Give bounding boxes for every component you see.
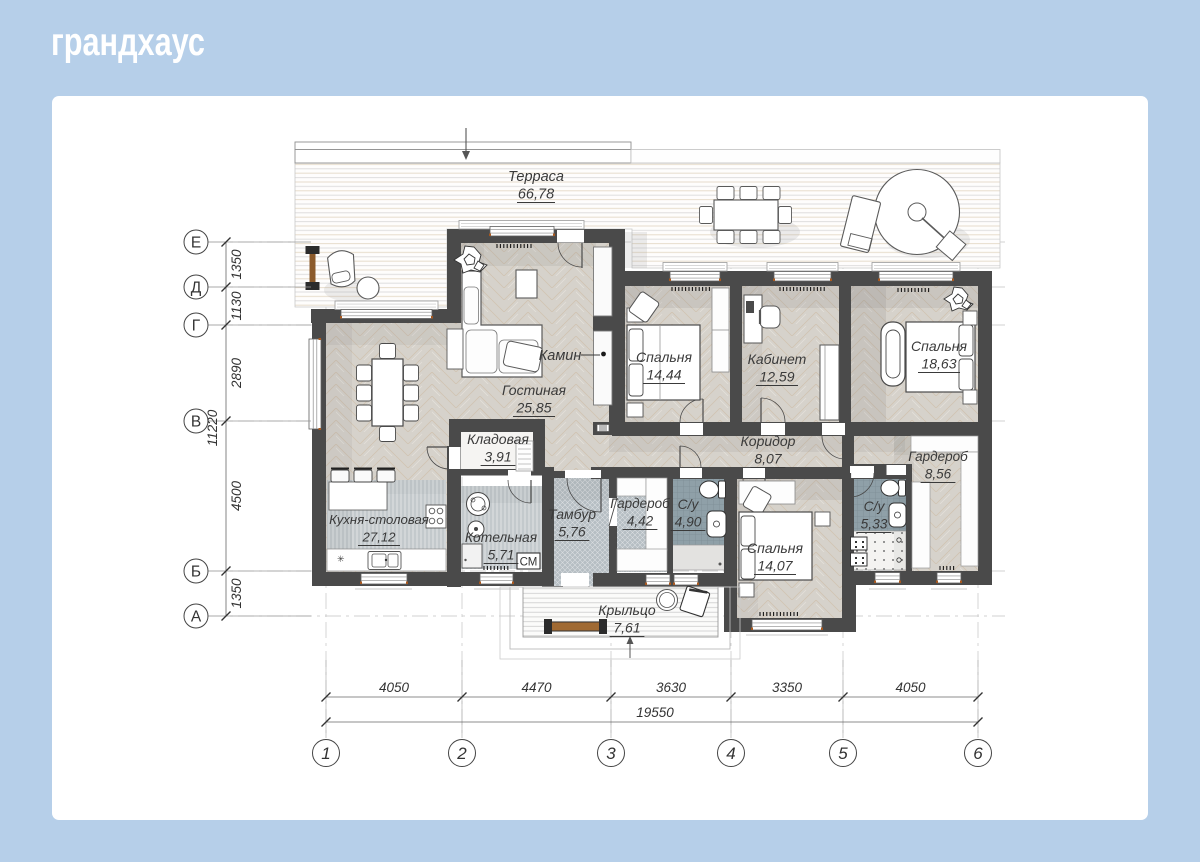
svg-text:2890: 2890 <box>229 357 244 389</box>
svg-text:4: 4 <box>726 744 735 763</box>
svg-text:Гостиная: Гостиная <box>502 382 567 398</box>
svg-text:2: 2 <box>456 744 467 763</box>
svg-text:25,85: 25,85 <box>515 400 551 416</box>
svg-text:Котельная: Котельная <box>465 530 538 545</box>
svg-text:С/у: С/у <box>864 499 886 514</box>
svg-text:Б: Б <box>191 564 201 581</box>
svg-text:5,76: 5,76 <box>558 524 585 540</box>
svg-text:3630: 3630 <box>656 680 687 695</box>
svg-text:Кабинет: Кабинет <box>748 351 807 367</box>
svg-text:7,61: 7,61 <box>613 620 640 636</box>
svg-text:4,90: 4,90 <box>675 515 702 530</box>
svg-text:Тамбур: Тамбур <box>548 506 596 522</box>
svg-text:Коридор: Коридор <box>741 433 796 449</box>
svg-text:А: А <box>191 609 202 626</box>
svg-text:Камин: Камин <box>539 348 582 364</box>
svg-text:6: 6 <box>973 744 983 763</box>
svg-text:19550: 19550 <box>636 705 674 720</box>
svg-text:Кладовая: Кладовая <box>467 431 529 447</box>
svg-text:Кухня-столовая: Кухня-столовая <box>329 512 429 527</box>
svg-text:✳: ✳ <box>337 554 345 564</box>
svg-text:4470: 4470 <box>521 680 552 695</box>
svg-text:Спальня: Спальня <box>636 349 692 365</box>
svg-text:4,42: 4,42 <box>627 514 654 529</box>
svg-text:Гардероб: Гардероб <box>610 496 670 511</box>
svg-text:1130: 1130 <box>229 291 244 321</box>
svg-text:СМ: СМ <box>520 557 538 569</box>
svg-text:66,78: 66,78 <box>518 187 554 203</box>
svg-text:14,44: 14,44 <box>646 367 681 383</box>
svg-text:8,07: 8,07 <box>754 451 782 467</box>
svg-text:3350: 3350 <box>772 680 803 695</box>
svg-text:Д: Д <box>191 280 202 297</box>
svg-text:5,33: 5,33 <box>861 517 888 532</box>
svg-text:грандхаус: грандхаус <box>51 21 205 64</box>
svg-text:Гардероб: Гардероб <box>908 449 968 464</box>
svg-text:С/у: С/у <box>678 497 700 512</box>
svg-text:Е: Е <box>191 235 201 252</box>
svg-text:4050: 4050 <box>379 680 410 695</box>
svg-text:4500: 4500 <box>229 480 244 511</box>
svg-text:12,59: 12,59 <box>759 369 794 385</box>
svg-text:Г: Г <box>192 318 201 335</box>
svg-text:27,12: 27,12 <box>361 530 396 545</box>
svg-text:1: 1 <box>321 744 330 763</box>
svg-text:18,63: 18,63 <box>921 356 956 372</box>
svg-text:Крыльцо: Крыльцо <box>598 602 656 618</box>
svg-text:В: В <box>191 414 201 431</box>
svg-text:11220: 11220 <box>205 409 220 446</box>
svg-text:5,71: 5,71 <box>488 548 515 563</box>
svg-text:14,07: 14,07 <box>757 558 793 574</box>
svg-text:Спальня: Спальня <box>747 540 803 556</box>
svg-text:1350: 1350 <box>229 249 244 280</box>
svg-text:3,91: 3,91 <box>484 449 511 465</box>
svg-text:4050: 4050 <box>895 680 926 695</box>
svg-text:Спальня: Спальня <box>911 338 967 354</box>
svg-text:5: 5 <box>838 744 848 763</box>
svg-text:Терраса: Терраса <box>508 169 564 185</box>
svg-text:3: 3 <box>606 744 616 763</box>
svg-text:1350: 1350 <box>229 578 244 609</box>
svg-text:8,56: 8,56 <box>925 467 952 482</box>
